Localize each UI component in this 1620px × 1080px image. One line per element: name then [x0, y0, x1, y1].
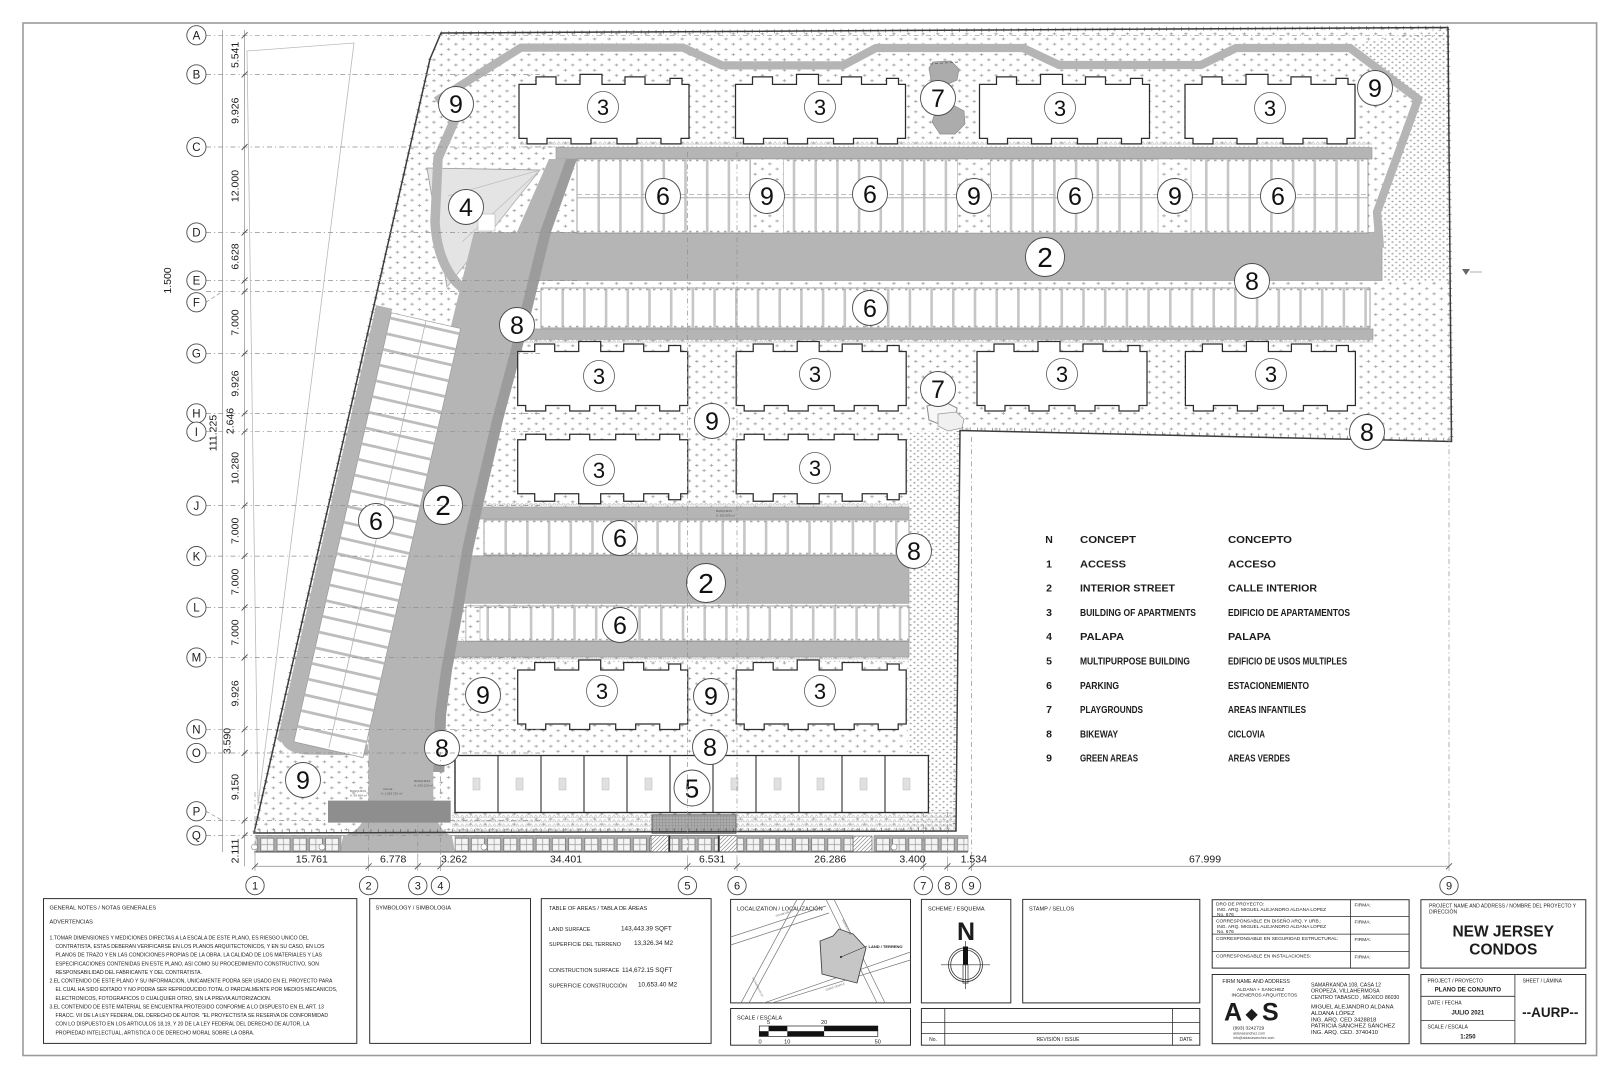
- svg-text:3.EL CONTENIDO DE ESTE MATERIA: 3.EL CONTENIDO DE ESTE MATERIAL SE ENCUE…: [50, 1004, 324, 1010]
- svg-text:EDIFICIO DE APARTAMENTOS: EDIFICIO DE APARTAMENTOS: [1228, 607, 1350, 619]
- svg-text:SCALE / ESCALA: SCALE / ESCALA: [1428, 1025, 1469, 1031]
- svg-text:5: 5: [685, 773, 699, 803]
- svg-text:7: 7: [1046, 704, 1052, 716]
- svg-text:3: 3: [809, 362, 821, 387]
- svg-text:PLANO DE CONJUNTO: PLANO DE CONJUNTO: [1435, 988, 1502, 994]
- svg-text:BIKEWAY: BIKEWAY: [1080, 728, 1118, 740]
- svg-text:9: 9: [704, 683, 718, 711]
- svg-text:CORRESPONSABLE EN SEGURIDAD ES: CORRESPONSABLE EN SEGURIDAD ESTRUCTURAL:: [1216, 936, 1338, 942]
- svg-text:SAMARKANDA 108, CASA 12: SAMARKANDA 108, CASA 12: [1311, 983, 1381, 989]
- svg-text:6.628: 6.628: [230, 243, 242, 269]
- svg-text:50: 50: [875, 1040, 881, 1046]
- svg-text:PLAYGROUNDS: PLAYGROUNDS: [1080, 704, 1143, 716]
- svg-text:S: S: [1262, 999, 1279, 1027]
- svg-text:STAMP / SELLOS: STAMP / SELLOS: [1029, 907, 1074, 913]
- svg-text:8: 8: [435, 735, 449, 763]
- svg-text:N: N: [957, 918, 975, 946]
- svg-text:4: 4: [437, 881, 443, 893]
- svg-text:I: I: [195, 427, 198, 439]
- svg-text:8: 8: [510, 312, 524, 340]
- svg-text:PROPIEDAD INTELECTUAL, ARTISTI: PROPIEDAD INTELECTUAL, ARTISTICA O DE DE…: [56, 1030, 255, 1036]
- svg-text:10.280: 10.280: [230, 452, 242, 484]
- svg-text:2: 2: [1037, 242, 1053, 273]
- svg-text:A: A: [193, 31, 201, 43]
- svg-text:3: 3: [1264, 96, 1276, 121]
- svg-text:8: 8: [1360, 419, 1374, 447]
- svg-text:L: L: [193, 603, 200, 615]
- svg-text:9: 9: [476, 682, 490, 710]
- svg-text:K: K: [193, 551, 201, 563]
- svg-text:PARKING: PARKING: [1080, 680, 1119, 692]
- svg-text:D: D: [192, 228, 200, 240]
- svg-text:JULIO 2021: JULIO 2021: [1452, 1011, 1485, 1017]
- svg-text:O: O: [192, 748, 201, 760]
- svg-text:3.590: 3.590: [222, 728, 234, 754]
- svg-text:9: 9: [449, 91, 463, 119]
- svg-text:BUILDING OF APARTMENTS: BUILDING OF APARTMENTS: [1080, 607, 1196, 619]
- svg-text:GREEN AREAS: GREEN AREAS: [1080, 753, 1138, 765]
- svg-text:aldanasanchez.com: aldanasanchez.com: [1233, 1032, 1265, 1036]
- svg-text:1.534: 1.534: [961, 853, 987, 865]
- svg-text:6.531: 6.531: [699, 853, 725, 865]
- svg-text:SUPERFICIE DEL TERRENO: SUPERFICIE DEL TERRENO: [549, 942, 621, 948]
- svg-text:6: 6: [1068, 183, 1082, 211]
- svg-text:3: 3: [1046, 607, 1052, 619]
- svg-text:SUPERFICIE CONSTRUCCIÓN: SUPERFICIE CONSTRUCCIÓN: [549, 983, 627, 990]
- svg-text:info@aldanasanchez.com: info@aldanasanchez.com: [1233, 1036, 1274, 1040]
- svg-text:SYMBOLOGY / SIMBOLOGIA: SYMBOLOGY / SIMBOLOGIA: [376, 906, 452, 912]
- svg-text:9.926: 9.926: [230, 370, 242, 396]
- svg-text:34.401: 34.401: [550, 853, 582, 865]
- svg-text:9: 9: [1046, 753, 1052, 765]
- svg-text:6: 6: [613, 612, 627, 640]
- svg-text:EL CUAL HA SIDO EDITADO Y NO P: EL CUAL HA SIDO EDITADO Y NO PODRA SER R…: [56, 987, 338, 993]
- svg-text:3: 3: [1056, 362, 1068, 387]
- svg-text:3: 3: [1054, 96, 1066, 121]
- svg-text:ING. ARQ. CED 3428818: ING. ARQ. CED 3428818: [1311, 1017, 1376, 1023]
- svg-text:MULTIPURPOSE BUILDING: MULTIPURPOSE BUILDING: [1080, 656, 1190, 668]
- svg-text:Q: Q: [192, 831, 201, 843]
- svg-text:TABLE OF AREAS / TABLA DE ÁREA: TABLE OF AREAS / TABLA DE ÁREAS: [549, 905, 648, 912]
- svg-text:A: 190.120 m²: A: 190.120 m²: [414, 784, 433, 788]
- svg-text:NEW JERSEY: NEW JERSEY: [1452, 924, 1554, 941]
- svg-text:8: 8: [1245, 268, 1259, 296]
- svg-text:E: E: [193, 276, 201, 288]
- svg-text:BANQUETA: BANQUETA: [350, 789, 366, 793]
- svg-text:10: 10: [784, 1040, 790, 1046]
- svg-text:CENTRO TABASCO , MÉXICO 86030: CENTRO TABASCO , MÉXICO 86030: [1311, 994, 1399, 1001]
- svg-text:3: 3: [1265, 362, 1277, 387]
- svg-text:9.926: 9.926: [230, 680, 242, 706]
- svg-text:8: 8: [907, 538, 921, 566]
- svg-text:9: 9: [760, 183, 774, 211]
- svg-text:ING. ARQ. CED. 3740410: ING. ARQ. CED. 3740410: [1311, 1030, 1378, 1036]
- svg-text:1:250: 1:250: [1460, 1035, 1476, 1041]
- svg-text:111.225: 111.225: [208, 415, 220, 452]
- svg-text:8: 8: [703, 734, 717, 762]
- svg-text:7: 7: [931, 85, 945, 113]
- svg-text:DATE: DATE: [1180, 1037, 1194, 1043]
- svg-text:ESTACIONEMIENTO: ESTACIONEMIENTO: [1228, 680, 1309, 692]
- svg-text:PROJECT / PROYECTO: PROJECT / PROYECTO: [1428, 979, 1483, 985]
- svg-text:6: 6: [656, 183, 670, 211]
- svg-text:6: 6: [863, 181, 877, 209]
- svg-text:6: 6: [734, 881, 740, 893]
- svg-text:ADVERTENCIAS: ADVERTENCIAS: [50, 920, 94, 926]
- svg-text:DRO DE PROYECTO:: DRO DE PROYECTO:: [1216, 902, 1264, 908]
- svg-text:5.541: 5.541: [230, 42, 242, 68]
- svg-text:1.TOMAR DIMENSIONES Y MEDICION: 1.TOMAR DIMENSIONES Y MEDICIONES DIRECTA…: [50, 936, 310, 942]
- svg-text:CONSTRUCTION SURFACE: CONSTRUCTION SURFACE: [549, 968, 620, 974]
- svg-text:7.000: 7.000: [230, 518, 242, 544]
- svg-text:CONCEPTO: CONCEPTO: [1228, 534, 1292, 546]
- svg-text:CALLE: CALLE: [383, 787, 393, 791]
- svg-text:6: 6: [1046, 680, 1052, 692]
- svg-text:A: 1,819.720 m²: A: 1,819.720 m²: [381, 792, 402, 796]
- svg-text:M: M: [192, 653, 202, 665]
- svg-text:9: 9: [968, 881, 974, 893]
- svg-text:0: 0: [758, 1040, 761, 1046]
- svg-text:FIRMA:: FIRMA:: [1355, 937, 1371, 943]
- svg-text:20: 20: [821, 1020, 827, 1026]
- svg-text:C: C: [192, 142, 200, 154]
- svg-text:67.999: 67.999: [1189, 853, 1221, 865]
- svg-text:CICLOVIA: CICLOVIA: [1228, 728, 1265, 740]
- svg-text:N: N: [192, 725, 200, 737]
- svg-text:9: 9: [705, 408, 719, 436]
- svg-text:SCALE / ESCALA: SCALE / ESCALA: [737, 1016, 782, 1022]
- svg-text:2.111: 2.111: [230, 838, 242, 863]
- svg-text:H: H: [192, 409, 200, 421]
- svg-text:MIGUEL ALEJANDRO ALDANA: MIGUEL ALEJANDRO ALDANA: [1311, 1005, 1394, 1011]
- svg-text:ACCESS: ACCESS: [1080, 558, 1126, 570]
- svg-text:4: 4: [459, 194, 473, 222]
- svg-text:F: F: [193, 298, 200, 310]
- svg-text:CONDOS: CONDOS: [1469, 942, 1537, 959]
- svg-text:4: 4: [1046, 631, 1052, 643]
- svg-text:6: 6: [1271, 183, 1285, 211]
- svg-text:CORRESPONSABLE EN INSTALACIONE: CORRESPONSABLE EN INSTALACIONES:: [1216, 953, 1311, 959]
- svg-text:10,653.40 M2: 10,653.40 M2: [638, 982, 678, 989]
- svg-text:CALLE INTERIOR: CALLE INTERIOR: [1228, 583, 1317, 595]
- svg-text:FIRMA:: FIRMA:: [1355, 903, 1371, 909]
- svg-text:P: P: [193, 807, 201, 819]
- svg-text:CONCEPT: CONCEPT: [1080, 534, 1137, 546]
- svg-text:G: G: [192, 349, 201, 361]
- svg-text:No.: No.: [929, 1037, 937, 1043]
- svg-text:7.000: 7.000: [230, 309, 242, 335]
- svg-text:SHEET / LÁMINA: SHEET / LÁMINA: [1523, 978, 1563, 985]
- svg-text:9: 9: [1368, 75, 1382, 103]
- svg-text:--AURP--: --AURP--: [1522, 1005, 1578, 1020]
- svg-text:114,672.15 SQFT: 114,672.15 SQFT: [622, 967, 672, 974]
- svg-text:3: 3: [809, 456, 821, 481]
- svg-text:2: 2: [366, 881, 372, 893]
- svg-text:A: 382.605 m²: A: 382.605 m²: [716, 514, 735, 518]
- svg-text:RESPONSABILIDAD DEL FABRICANTE: RESPONSABILIDAD DEL FABRICANTE Y DEL CON…: [56, 970, 202, 976]
- svg-text:3: 3: [596, 679, 608, 704]
- svg-text:9: 9: [1168, 183, 1182, 211]
- svg-text:1: 1: [1046, 558, 1052, 570]
- svg-text:J: J: [194, 501, 200, 513]
- svg-text:3: 3: [597, 95, 609, 120]
- svg-text:◆: ◆: [1246, 1006, 1259, 1023]
- svg-text:1.500: 1.500: [162, 267, 174, 293]
- svg-text:6: 6: [613, 525, 627, 553]
- svg-text:8: 8: [1046, 728, 1052, 740]
- svg-text:A: A: [1224, 999, 1242, 1027]
- svg-text:3.262: 3.262: [441, 853, 467, 865]
- svg-text:7.000: 7.000: [230, 619, 242, 645]
- svg-text:9: 9: [967, 183, 981, 211]
- svg-text:3: 3: [593, 364, 605, 389]
- svg-text:143,443.39 SQFT: 143,443.39 SQFT: [621, 926, 672, 933]
- svg-text:DATE / FECHA: DATE / FECHA: [1428, 1001, 1463, 1007]
- svg-text:N: N: [1045, 534, 1053, 546]
- svg-text:LAND / TERRENO: LAND / TERRENO: [869, 944, 903, 949]
- svg-text:1: 1: [252, 881, 258, 893]
- svg-text:A: 69.654 m²: A: 69.654 m²: [350, 794, 367, 798]
- svg-text:SCHEME / ESQUEMA: SCHEME / ESQUEMA: [928, 907, 985, 913]
- svg-text:2: 2: [1046, 583, 1052, 595]
- svg-text:ALDANA LÓPEZ: ALDANA LÓPEZ: [1311, 1010, 1355, 1017]
- svg-text:9.150: 9.150: [230, 774, 242, 800]
- svg-text:12.000: 12.000: [230, 170, 242, 202]
- svg-text:CONTRATISTA, ESTAS DEBERAN VER: CONTRATISTA, ESTAS DEBERAN VERIFICARSE E…: [56, 944, 325, 950]
- svg-text:3: 3: [814, 95, 826, 120]
- svg-text:CORRESPONSABLE EN DISEÑO ARQ.: CORRESPONSABLE EN DISEÑO ARQ. Y URB.:: [1216, 917, 1321, 924]
- svg-text:BANQUETA: BANQUETA: [414, 779, 430, 783]
- svg-text:FIRMA:: FIRMA:: [1355, 920, 1371, 926]
- svg-text:No. 676: No. 676: [1217, 929, 1234, 935]
- svg-text:CON LO DISPUESTO EN LOS ARTICU: CON LO DISPUESTO EN LOS ARTICULOS 18,19,…: [56, 1022, 310, 1028]
- svg-text:9: 9: [296, 767, 310, 795]
- svg-text:INTERIOR STREET: INTERIOR STREET: [1080, 583, 1176, 595]
- svg-text:ACCESO: ACCESO: [1228, 558, 1276, 570]
- svg-text:OROPEZA, VILLAHERMOSA: OROPEZA, VILLAHERMOSA: [1311, 989, 1380, 995]
- svg-text:6.778: 6.778: [380, 853, 406, 865]
- svg-text:2.EL CONTENIDO DE ESTE PLANO Y: 2.EL CONTENIDO DE ESTE PLANO Y SU INFORM…: [50, 979, 333, 985]
- svg-text:PATRICIA SÁNCHEZ SÁNCHEZ: PATRICIA SÁNCHEZ SÁNCHEZ: [1311, 1023, 1396, 1030]
- svg-text:FIRM NAME AND ADDRESS: FIRM NAME AND ADDRESS: [1222, 979, 1290, 985]
- svg-text:ELECTRONICOS, FOTOGRAFICOS O C: ELECTRONICOS, FOTOGRAFICOS O CUALQUIER O…: [56, 996, 272, 1002]
- svg-text:ESPECIFICACIONES CONTENIDAS EN: ESPECIFICACIONES CONTENIDAS EN ESTE PLAN…: [56, 961, 320, 967]
- svg-text:5: 5: [684, 881, 690, 893]
- svg-text:AREAS INFANTILES: AREAS INFANTILES: [1228, 704, 1306, 716]
- svg-text:7: 7: [920, 881, 926, 893]
- svg-text:15.761: 15.761: [296, 853, 328, 865]
- svg-text:3: 3: [814, 679, 826, 704]
- svg-text:7: 7: [931, 376, 945, 404]
- svg-text:2: 2: [698, 568, 714, 599]
- svg-text:9: 9: [1446, 881, 1452, 893]
- svg-text:PALAPA: PALAPA: [1228, 631, 1271, 643]
- svg-text:26.286: 26.286: [814, 853, 846, 865]
- svg-text:5: 5: [767, 1020, 770, 1026]
- svg-text:FIRMA:: FIRMA:: [1355, 954, 1371, 960]
- svg-text:BANQUETA: BANQUETA: [716, 509, 732, 513]
- svg-text:3: 3: [593, 458, 605, 483]
- svg-text:LAND SURFACE: LAND SURFACE: [549, 927, 591, 933]
- svg-text:FRACC. VII DE LA LEY FEDERAL D: FRACC. VII DE LA LEY FEDERAL DEL DERECHO…: [56, 1013, 329, 1019]
- svg-text:REVISIÓN / ISSUE: REVISIÓN / ISSUE: [1036, 1036, 1080, 1043]
- svg-text:13,326.34 M2: 13,326.34 M2: [634, 940, 674, 947]
- svg-text:ALDANA + SANCHEZ: ALDANA + SANCHEZ: [1237, 987, 1284, 993]
- svg-text:PLANOS DE TRAZO Y EN LAS CONDI: PLANOS DE TRAZO Y EN LAS CONDICIONES PRO…: [56, 953, 323, 959]
- svg-text:GENERAL NOTES / NOTAS GENERALE: GENERAL NOTES / NOTAS GENERALES: [50, 906, 157, 912]
- svg-text:3.400: 3.400: [899, 853, 925, 865]
- svg-text:PALAPA: PALAPA: [1080, 631, 1124, 643]
- svg-text:2.646: 2.646: [225, 408, 237, 434]
- svg-text:AREAS VERDES: AREAS VERDES: [1228, 753, 1290, 765]
- svg-text:DIRECCIÓN: DIRECCIÓN: [1429, 909, 1457, 916]
- svg-text:6: 6: [369, 508, 383, 536]
- svg-text:3: 3: [415, 881, 421, 893]
- svg-text:8: 8: [944, 881, 950, 893]
- svg-text:2: 2: [435, 490, 451, 521]
- svg-text:B: B: [193, 70, 201, 82]
- svg-text:6: 6: [863, 295, 877, 323]
- svg-text:9.926: 9.926: [230, 97, 242, 123]
- svg-text:7.000: 7.000: [230, 569, 242, 595]
- svg-text:EDIFICIO DE USOS MULTIPLES: EDIFICIO DE USOS MULTIPLES: [1228, 656, 1347, 668]
- svg-text:ING. ARQ. MIGUEL ALEJANDRO ALD: ING. ARQ. MIGUEL ALEJANDRO ALDANA LOPEZ: [1217, 924, 1326, 930]
- svg-text:5: 5: [1046, 656, 1052, 668]
- svg-text:No. 676: No. 676: [1217, 912, 1234, 918]
